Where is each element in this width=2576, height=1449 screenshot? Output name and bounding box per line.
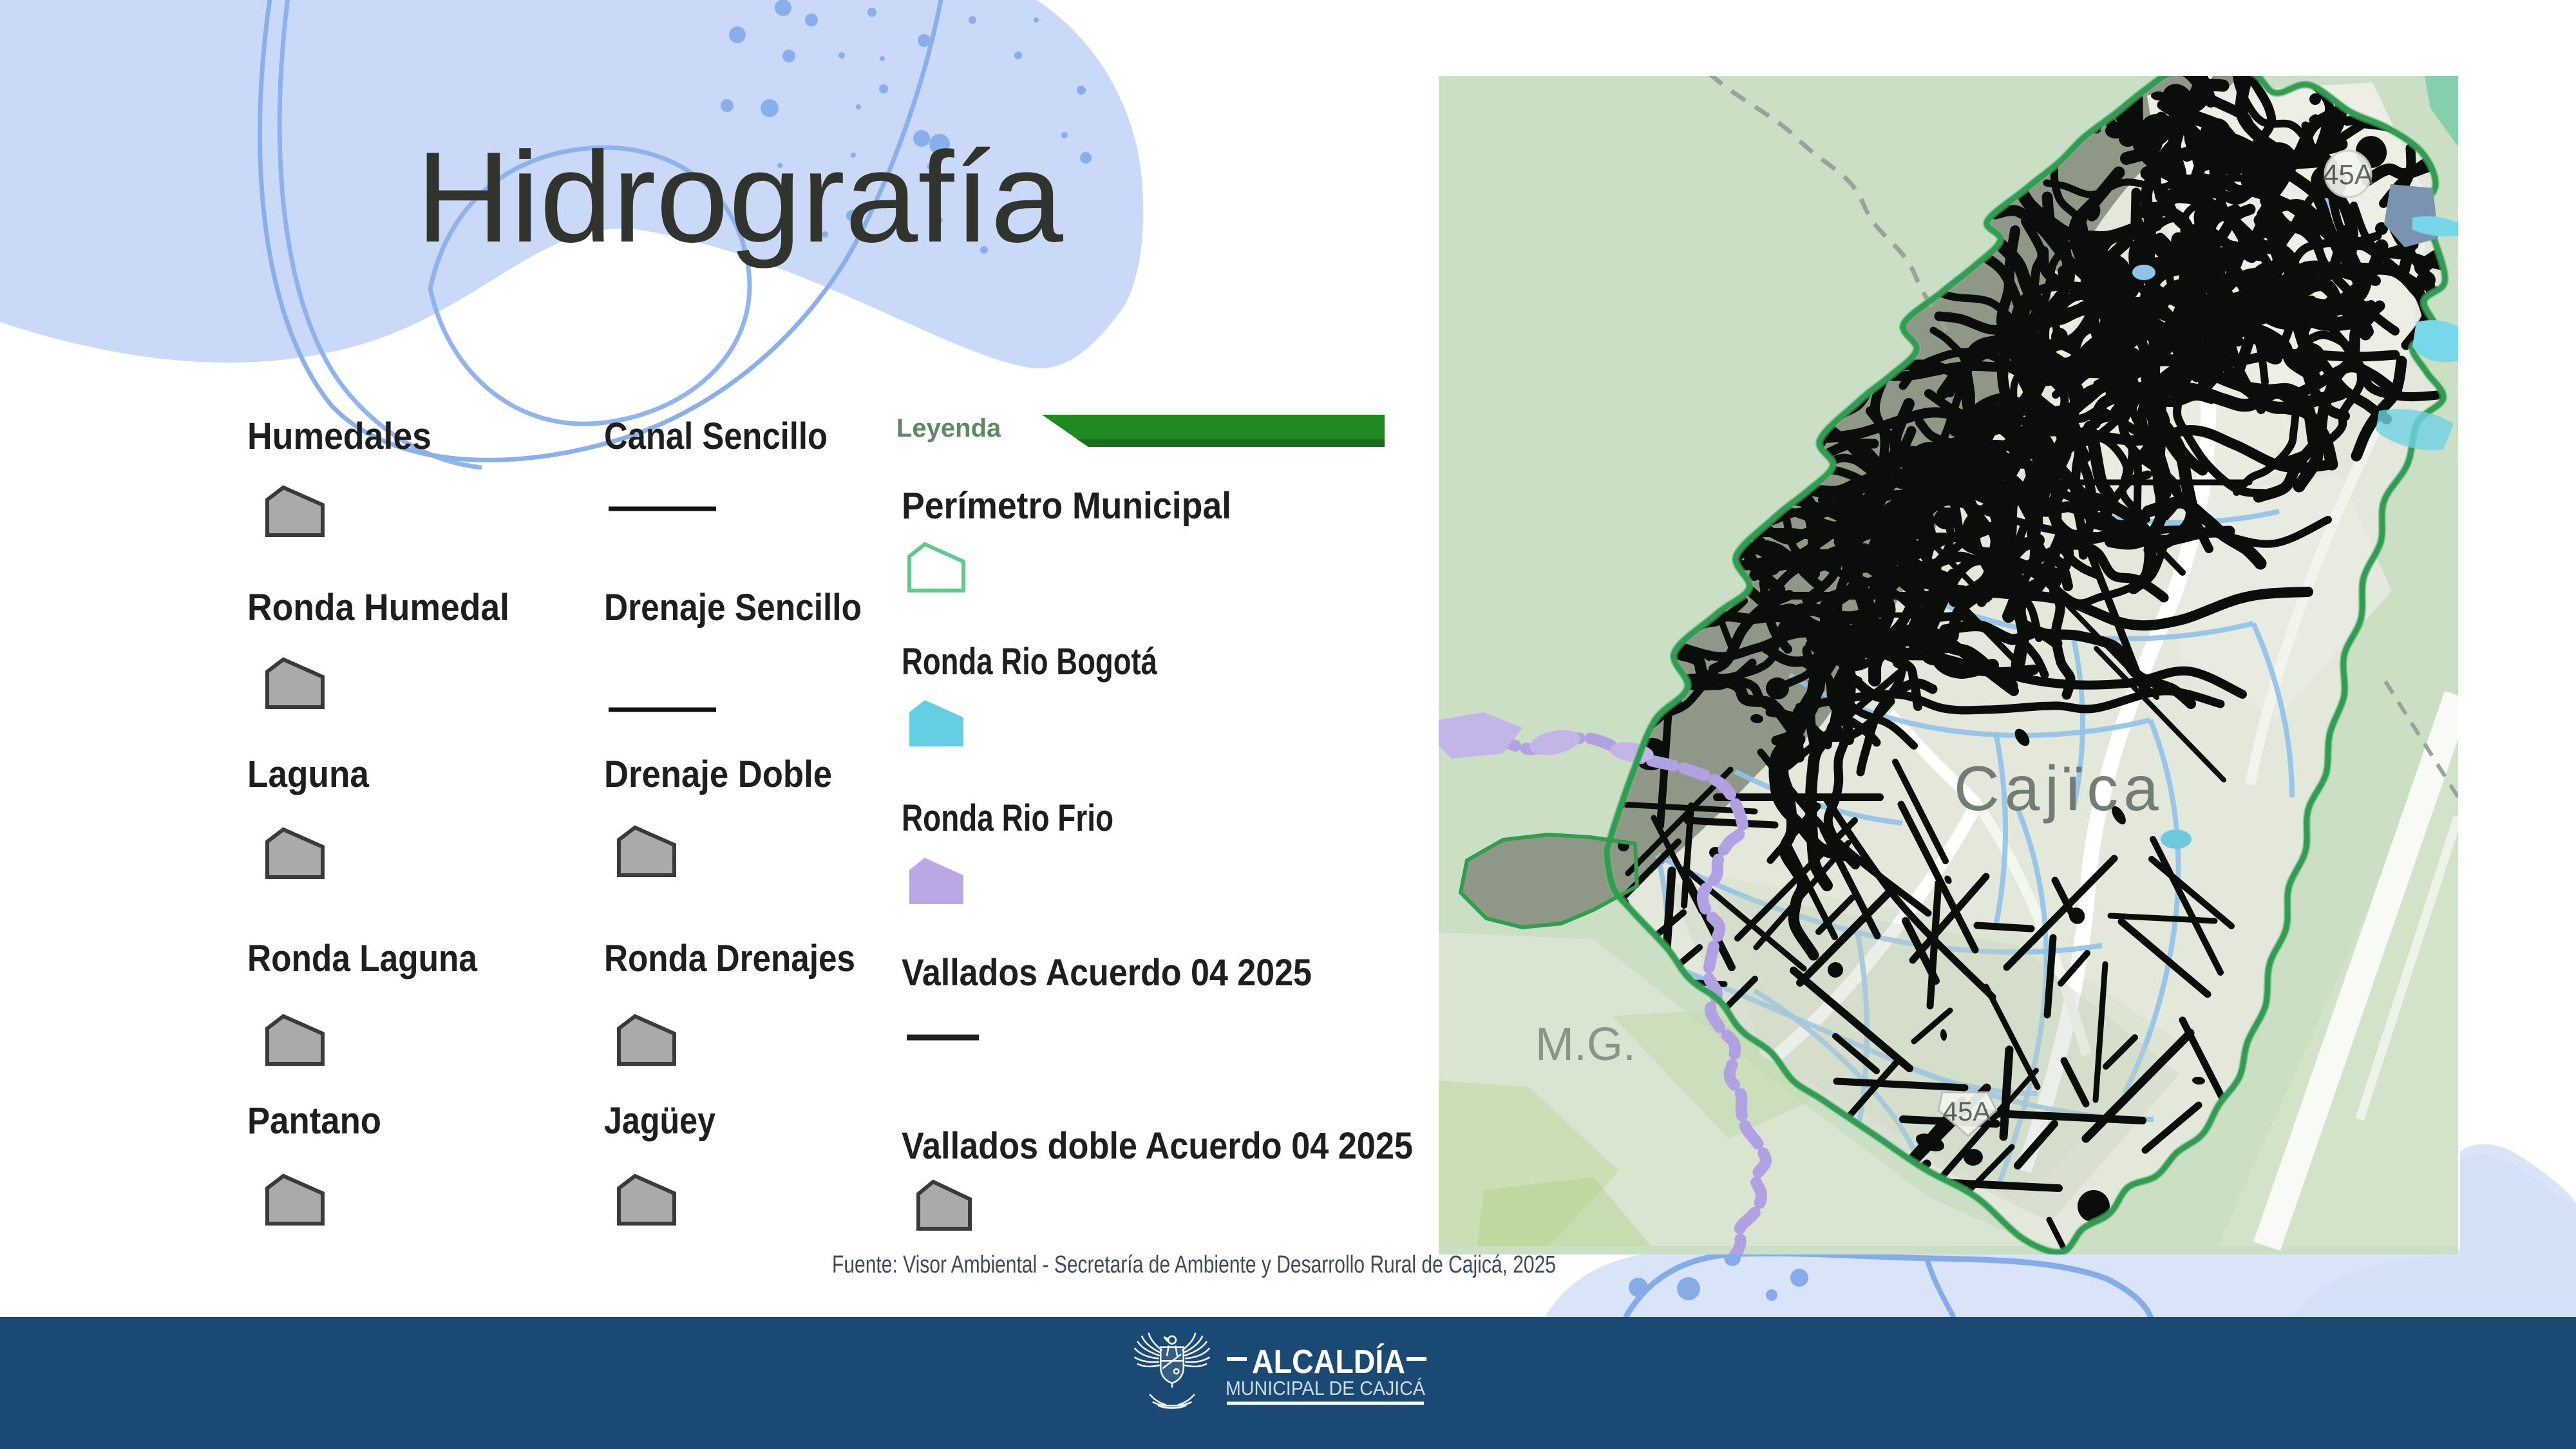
svg-text:45A: 45A (2323, 159, 2374, 191)
svg-text:Fuente: Visor Ambiental - Secr: Fuente: Visor Ambiental - Secretaría de … (832, 1251, 1556, 1278)
svg-text:ALCALDÍA: ALCALDÍA (1252, 1343, 1405, 1381)
svg-text:Drenaje Sencillo: Drenaje Sencillo (604, 587, 862, 629)
svg-text:Humedales: Humedales (247, 415, 431, 457)
svg-text:Ronda Laguna: Ronda Laguna (247, 938, 478, 980)
svg-text:Cajïca: Cajïca (1954, 753, 2164, 824)
svg-text:Vallados Acuerdo 04 2025: Vallados Acuerdo 04 2025 (902, 952, 1312, 994)
svg-text:Ronda Rio Bogotá: Ronda Rio Bogotá (902, 641, 1158, 683)
svg-text:Jagüey: Jagüey (604, 1100, 715, 1142)
svg-text:Perímetro Municipal: Perímetro Municipal (902, 485, 1231, 527)
svg-text:45A: 45A (1943, 1096, 1991, 1126)
svg-text:Laguna: Laguna (247, 753, 370, 795)
svg-text:Ronda Rio Frio: Ronda Rio Frio (902, 797, 1113, 839)
svg-text:Hidrografía: Hidrografía (416, 126, 1064, 269)
svg-text:Ronda Drenajes: Ronda Drenajes (604, 938, 855, 980)
svg-text:Ronda Humedal: Ronda Humedal (247, 587, 509, 629)
svg-text:MUNICIPAL DE CAJICÁ: MUNICIPAL DE CAJICÁ (1226, 1377, 1425, 1399)
svg-text:Drenaje Doble: Drenaje Doble (604, 753, 832, 795)
svg-text:M.G.: M.G. (1535, 1019, 1636, 1070)
svg-text:Canal Sencillo: Canal Sencillo (604, 415, 828, 457)
svg-text:Leyenda: Leyenda (896, 414, 1001, 442)
svg-text:Vallados doble Acuerdo 04 2025: Vallados doble Acuerdo 04 2025 (902, 1125, 1413, 1167)
svg-text:Pantano: Pantano (247, 1100, 381, 1142)
